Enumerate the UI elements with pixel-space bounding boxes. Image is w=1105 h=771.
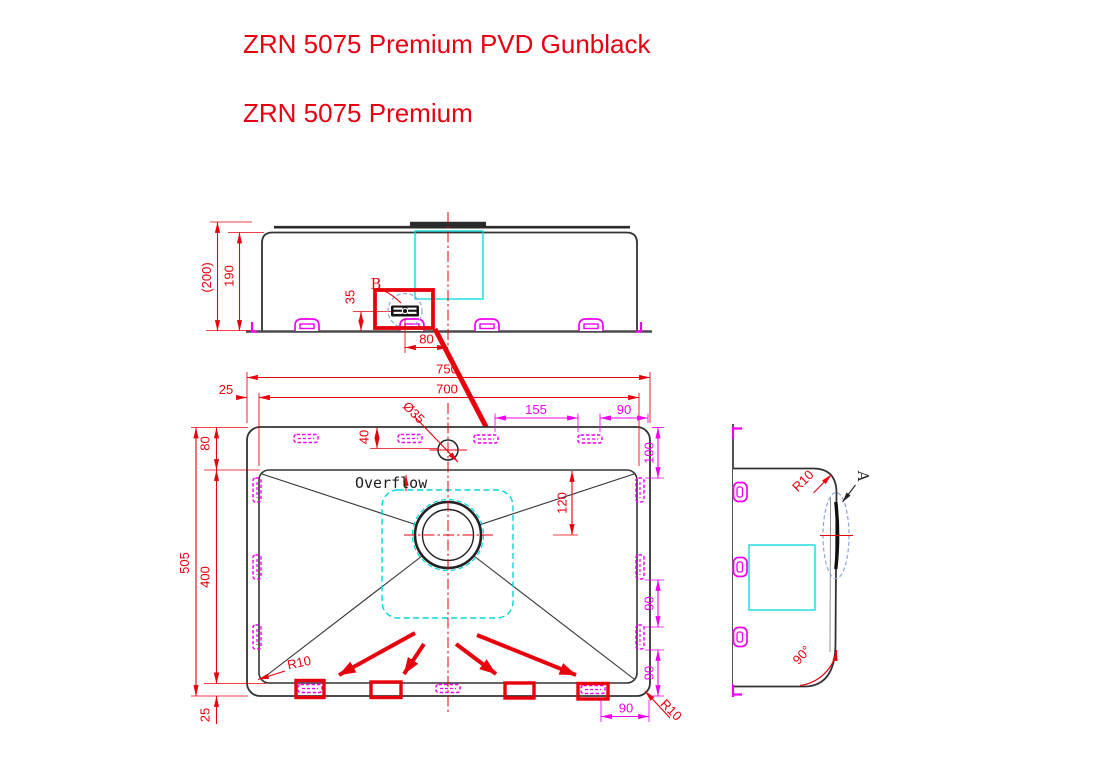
dim-text-flange-top: 80 (198, 436, 213, 450)
dim-text-clip-span-right-lower: 90 (642, 666, 657, 680)
dim-text-clip-span-right-upper: 90 (642, 596, 657, 610)
sink-drawing-svg: ZRN 5075 Premium PVD Gunblack ZRN 5075 P… (0, 0, 1105, 771)
title-line-2: ZRN 5075 Premium (243, 98, 473, 128)
dim-text-clip-to-center: 80 (419, 332, 433, 347)
side-view: R10 A 90° (733, 424, 870, 697)
side-counter-end-tick-top (733, 427, 742, 440)
dim-text-clip-offset-right: 100 (642, 442, 657, 464)
front-body-outline (262, 233, 637, 332)
side-clip (734, 483, 748, 502)
dim-text-clip-edge-bottom: 90 (619, 701, 633, 716)
detail-a-label: A (843, 470, 871, 502)
front-rim-end-tick-left (252, 322, 257, 332)
dim-plan-clip-edge-bottom: 90 (601, 700, 649, 722)
dim-text-clip-height: 35 (343, 290, 358, 304)
dim-plan-flange-left: 25 (219, 382, 270, 398)
dim-text-drain-offset: 120 (555, 492, 570, 514)
dim-text-overall-height: (200) (199, 262, 214, 292)
dim-text-flange-bottom: 25 (198, 708, 213, 722)
title-line-1: ZRN 5075 Premium PVD Gunblack (243, 29, 651, 59)
dim-front-bowl-depth: 190 (222, 233, 265, 332)
dim-text-bowl-depth: 190 (222, 265, 237, 287)
front-clip (475, 319, 499, 331)
detail-a-text: A (854, 470, 870, 482)
dim-text-flange-left: 25 (219, 382, 233, 397)
dim-text-hole-offset: 40 (357, 430, 372, 444)
dim-text-hole-dia: Ø35 (400, 399, 428, 427)
dim-text-overall-width: 750 (436, 362, 458, 377)
side-clip (734, 628, 748, 647)
side-clip (734, 558, 748, 577)
plan-view: Overflow 750 700 25 80 40 (177, 362, 685, 725)
overflow-label: Overflow (355, 474, 428, 492)
dim-text-bowl-depth: 400 (198, 566, 213, 588)
dim-text-bowl-width: 700 (436, 382, 458, 397)
dim-text-clip-span-top: 155 (525, 402, 547, 417)
front-clip (579, 319, 603, 331)
radius-text-bottom-right: R10 (657, 696, 684, 723)
dim-text-overall-depth: 505 (177, 552, 192, 574)
dim-plan-flange-bottom: 25 (198, 672, 217, 724)
front-clip (295, 319, 319, 331)
technical-drawing-page: ZRN 5075 Premium PVD Gunblack ZRN 5075 P… (0, 0, 1105, 771)
drawing-titles: ZRN 5075 Premium PVD Gunblack ZRN 5075 P… (243, 29, 651, 128)
radius-label-bottom-right: R10 (645, 691, 685, 724)
dim-text-clip-edge-top: 90 (617, 402, 631, 417)
dim-plan-overall-depth: 505 (177, 428, 248, 697)
